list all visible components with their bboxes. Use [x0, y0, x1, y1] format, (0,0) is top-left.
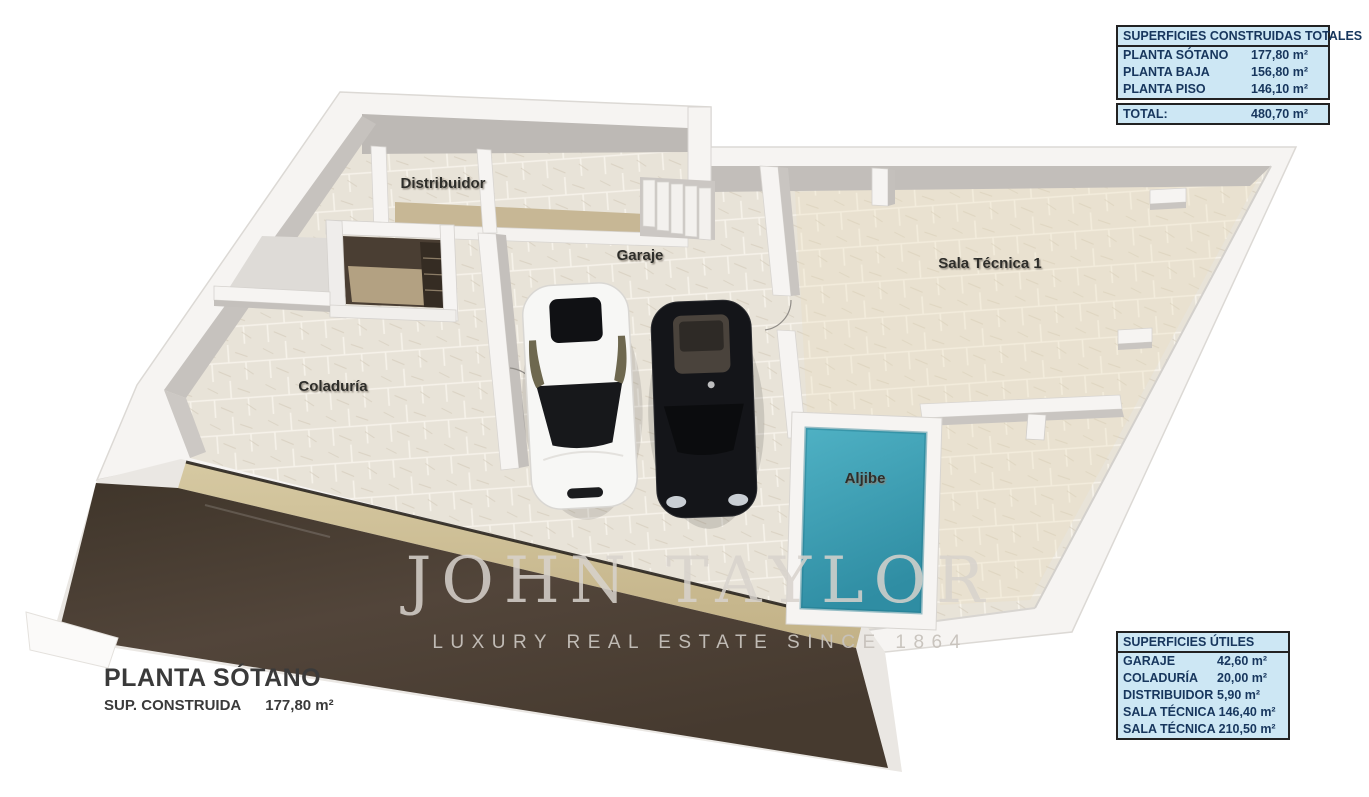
room-label-sala-tecnica-1: Sala Técnica 1 — [938, 255, 1041, 272]
car-white-sunroof — [549, 297, 603, 344]
row-value: 177,80 m² — [1251, 47, 1323, 64]
stair-step — [699, 188, 711, 240]
row-label: COLADURÍA — [1123, 670, 1217, 687]
built-areas-header: SUPERFICIES CONSTRUIDAS TOTALES — [1118, 27, 1328, 47]
room-label-coladuria: Coladuría — [298, 378, 368, 395]
car-black — [644, 299, 768, 531]
row-label: PLANTA BAJA — [1123, 64, 1251, 81]
table-row: PLANTA SÓTANO 177,80 m² — [1118, 47, 1328, 64]
table-row: PLANTA PISO 146,10 m² — [1118, 81, 1328, 98]
page-subtitle: SUP. CONSTRUIDA177,80 m² — [104, 697, 334, 714]
room-label-aljibe: Aljibe — [845, 470, 886, 487]
stair-step — [685, 186, 697, 237]
total-value: 480,70 m² — [1251, 105, 1323, 123]
row-label: GARAJE — [1123, 653, 1217, 670]
car-black-roof-inner — [679, 320, 724, 352]
built-areas-main-box: SUPERFICIES CONSTRUIDAS TOTALES PLANTA S… — [1116, 25, 1330, 100]
row-label: DISTRIBUIDOR — [1123, 687, 1217, 704]
pilaster-1-face — [888, 169, 895, 206]
pilaster-3 — [1118, 328, 1152, 344]
room-label-distribuidor: Distribuidor — [401, 175, 486, 192]
row-label: SALA TÉCNICA 2 — [1123, 721, 1226, 738]
car-white-grille — [567, 487, 603, 499]
stairs-top — [640, 177, 715, 240]
table-row: PLANTA BAJA 156,80 m² — [1118, 64, 1328, 81]
stair-step — [671, 184, 683, 234]
row-value: 156,80 m² — [1251, 64, 1323, 81]
built-areas-table: SUPERFICIES CONSTRUIDAS TOTALES PLANTA S… — [1116, 25, 1330, 125]
row-value: 146,10 m² — [1251, 81, 1323, 98]
row-value: 20,00 m² — [1217, 670, 1283, 687]
page-title: PLANTA SÓTANO — [104, 664, 334, 693]
car-white — [516, 281, 648, 523]
row-value: 5,90 m² — [1217, 687, 1283, 704]
total-row: TOTAL: 480,70 m² — [1118, 105, 1328, 123]
table-row: DISTRIBUIDOR 5,90 m² — [1118, 687, 1288, 704]
built-area-value: 177,80 m² — [265, 697, 333, 714]
row-value: 42,60 m² — [1217, 653, 1283, 670]
sala2-wall-stub — [1026, 414, 1046, 440]
usable-areas-header: SUPERFICIES ÚTILES — [1118, 633, 1288, 653]
title-block: PLANTA SÓTANO SUP. CONSTRUIDA177,80 m² — [104, 664, 334, 714]
aljibe-water — [801, 428, 926, 613]
table-row: GARAJE 42,60 m² — [1118, 653, 1288, 670]
row-label: PLANTA SÓTANO — [1123, 47, 1251, 64]
table-row: SALA TÉCNICA 1 46,40 m² — [1118, 704, 1288, 721]
built-areas-total-box: TOTAL: 480,70 m² — [1116, 103, 1330, 125]
pilaster-2 — [1150, 188, 1186, 204]
distribuidor-west-wall — [371, 146, 389, 232]
room-label-garaje: Garaje — [617, 247, 664, 264]
row-value: 10,50 m² — [1226, 721, 1283, 738]
aljibe-tank — [786, 412, 942, 630]
total-label: TOTAL: — [1123, 105, 1251, 123]
usable-areas-table: SUPERFICIES ÚTILES GARAJE 42,60 m² COLAD… — [1116, 631, 1290, 740]
table-row: SALA TÉCNICA 2 10,50 m² — [1118, 721, 1288, 738]
row-label: PLANTA PISO — [1123, 81, 1251, 98]
row-label: SALA TÉCNICA 1 — [1123, 704, 1226, 721]
floorplan-page: Distribuidor Garaje Sala Técnica 1 Colad… — [0, 0, 1369, 797]
built-area-label: SUP. CONSTRUIDA — [104, 697, 241, 714]
stair-step — [657, 182, 669, 231]
table-row: COLADURÍA 20,00 m² — [1118, 670, 1288, 687]
stair-step — [643, 180, 655, 227]
pilaster-1 — [872, 168, 888, 206]
row-value: 46,40 m² — [1226, 704, 1283, 721]
usable-areas-box: SUPERFICIES ÚTILES GARAJE 42,60 m² COLAD… — [1116, 631, 1290, 740]
